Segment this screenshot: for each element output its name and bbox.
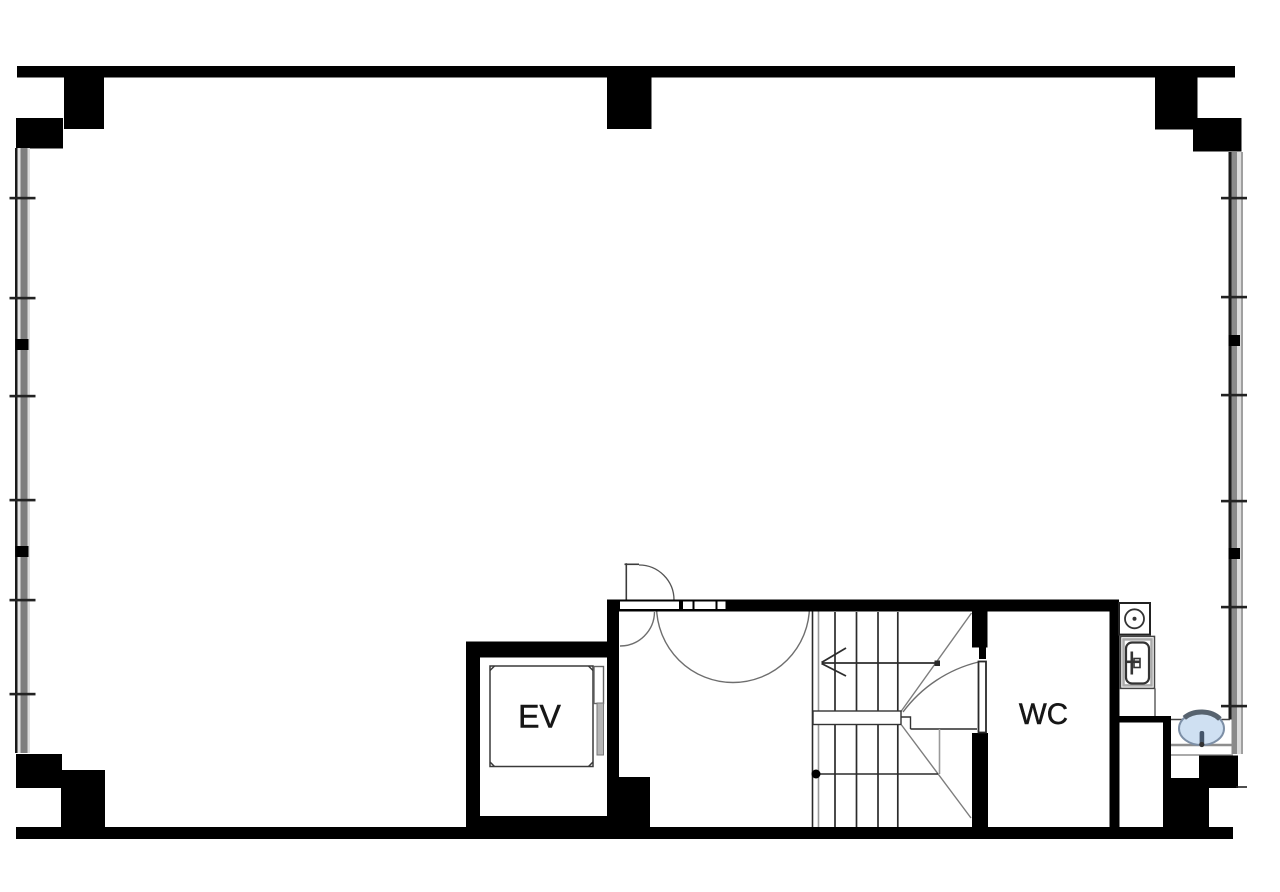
svg-text:EV: EV bbox=[518, 699, 561, 735]
svg-text:WC: WC bbox=[1019, 698, 1068, 731]
